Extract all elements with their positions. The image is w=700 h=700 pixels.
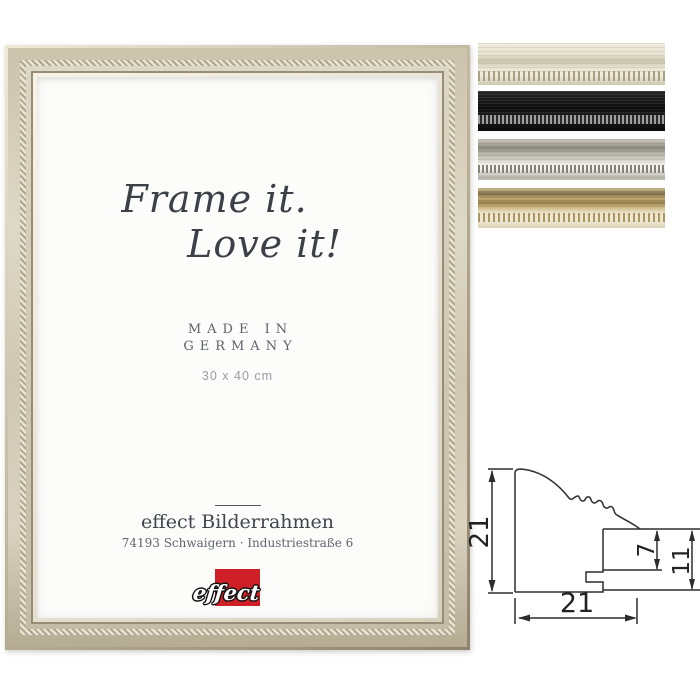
dim-back-height-label: 11 (669, 546, 695, 575)
company-name: effect Bilderrahmen (37, 511, 438, 533)
made-in-line1: MADE IN (37, 322, 438, 337)
size-label: 30 x 40 cm (37, 369, 438, 383)
poster-paper: Frame it. Love it! MADE IN GERMANY 30 x … (37, 77, 438, 618)
profile-drawing: 21 7 11 21 (455, 440, 700, 640)
swatch-black[interactable] (478, 91, 665, 131)
dim-height-label: 21 (465, 515, 495, 548)
frame-moulding: Frame it. Love it! MADE IN GERMANY 30 x … (5, 45, 470, 650)
dimension-width: 21 (515, 588, 637, 624)
made-in-line2: GERMANY (37, 339, 438, 354)
dim-width-label: 21 (560, 588, 594, 619)
brand-logo-text: effect (192, 582, 261, 603)
company-address: 74193 Schwaigern · Industriestraße 6 (37, 536, 438, 550)
swatch-silver-grey[interactable] (478, 139, 665, 180)
dimension-height: 21 (465, 469, 513, 593)
dimension-back-height: 11 (669, 530, 695, 590)
product-photo: Frame it. Love it! MADE IN GERMANY 30 x … (5, 45, 470, 650)
swatch-gold[interactable] (478, 188, 665, 228)
divider-line (215, 505, 261, 506)
dimension-rabbet-depth: 7 (634, 530, 660, 570)
dim-rabbet-label: 7 (634, 543, 660, 558)
swatch-cream-white[interactable] (478, 43, 665, 85)
headline-line1: Frame it. (121, 180, 307, 218)
product-image: Frame it. Love it! MADE IN GERMANY 30 x … (0, 0, 700, 700)
headline-line2: Love it! (187, 225, 342, 263)
